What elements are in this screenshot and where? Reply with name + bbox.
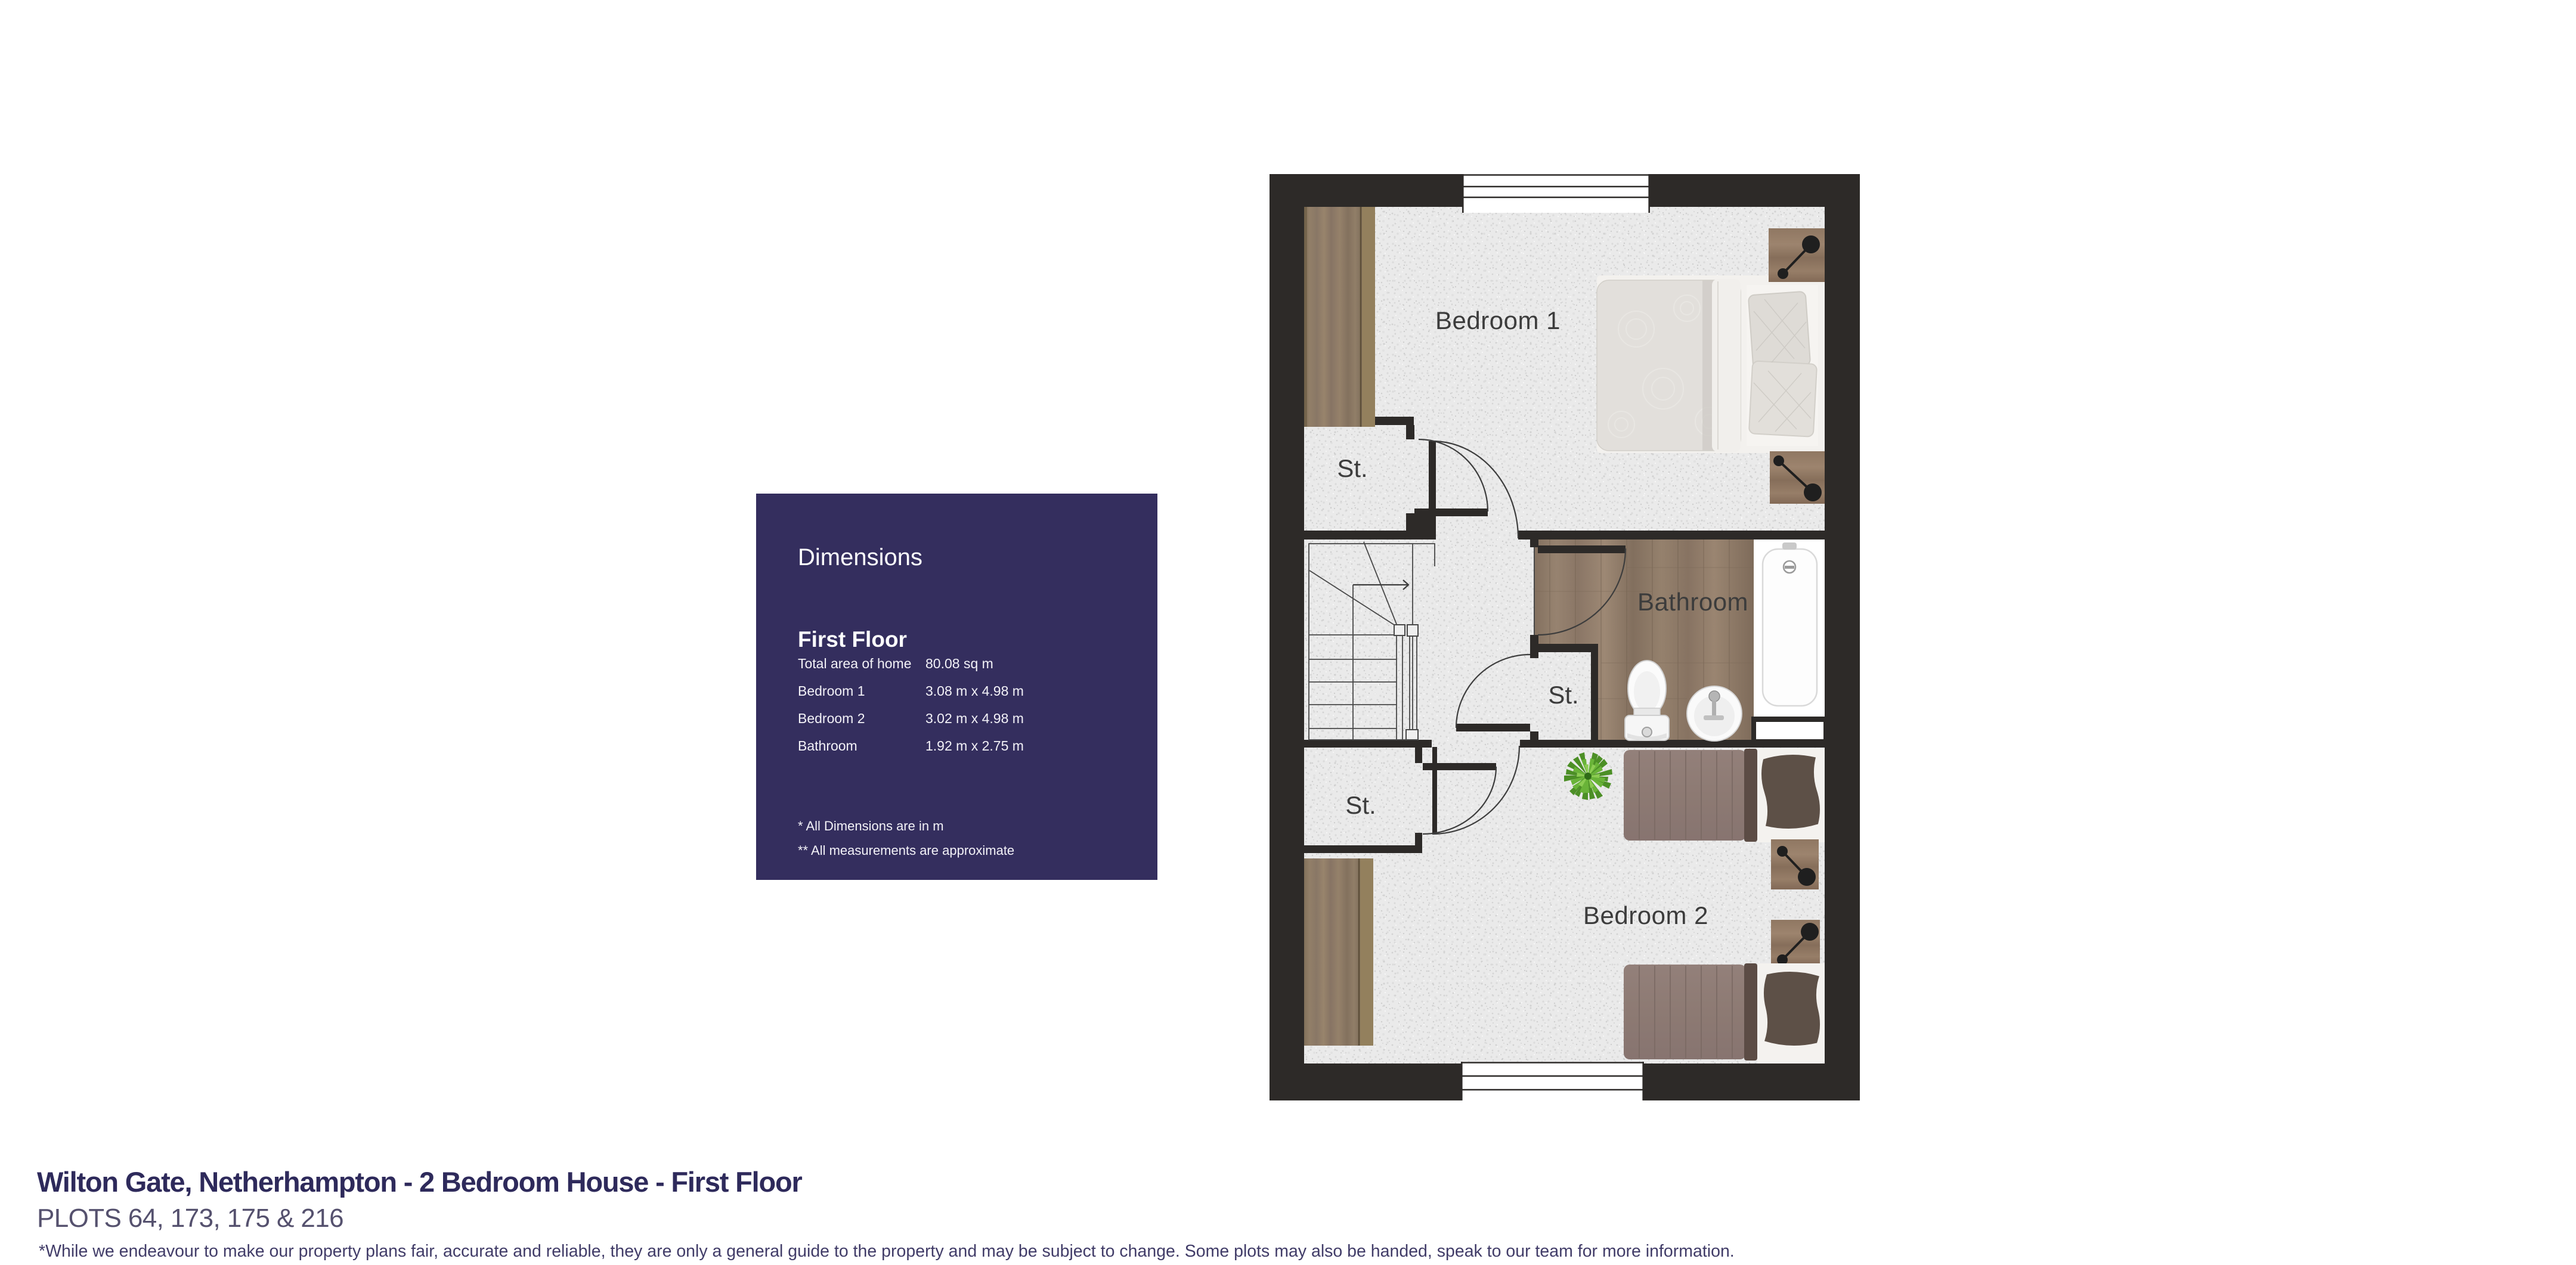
- svg-text:Bathroom: Bathroom: [1637, 588, 1748, 616]
- svg-text:St.: St.: [1548, 681, 1578, 709]
- svg-text:Bedroom 2: Bedroom 2: [1583, 901, 1708, 929]
- svg-text:Bedroom 1: Bedroom 1: [1435, 306, 1561, 334]
- svg-text:St.: St.: [1337, 454, 1367, 482]
- svg-text:St.: St.: [1345, 791, 1376, 819]
